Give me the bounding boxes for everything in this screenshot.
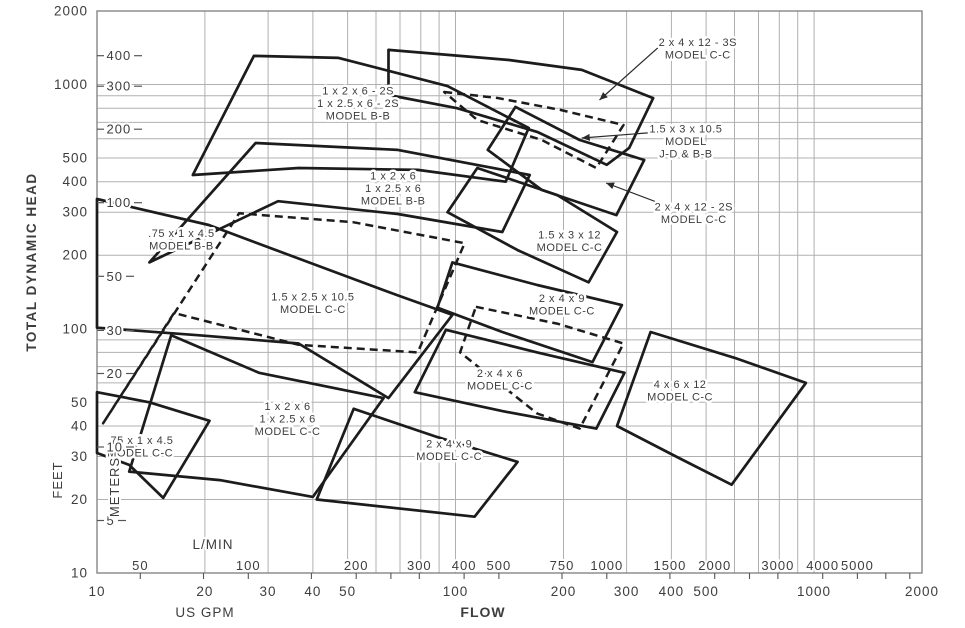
feet-tick-label: 2000: [54, 4, 88, 19]
lmin-tick-label: 400: [452, 558, 477, 573]
callout-2x4x12-2s-label: 2 x 4 x 12 - 2S: [655, 202, 733, 214]
gpm-tick-label: 400: [659, 584, 685, 599]
gpm-tick-label: 500: [693, 584, 719, 599]
envelope-15x3x12-cc: [448, 168, 618, 282]
chart-canvas: .75 x 1 x 4.5MODEL B-B.75 x 1 x 4.5MODEL…: [0, 0, 965, 628]
gpm-tick-label: 40: [304, 584, 321, 599]
gpm-axis-name: US GPM: [175, 605, 234, 620]
lmin-tick-label: 2000: [698, 558, 731, 573]
callouts: 2 x 4 x 12 - 3SMODEL C-C1.5 x 3 x 10.5MO…: [582, 37, 737, 226]
gpm-tick-label: 200: [551, 584, 577, 599]
envelope-1x2x6-2s-bb-label: 1 x 2 x 6 - 2S: [322, 86, 394, 98]
callout-15x3x105-jd-arrow: [582, 132, 660, 138]
envelope-4x6x12-cc: [617, 332, 806, 485]
meters-tick-label: 400: [107, 48, 132, 63]
envelope-1x2x6-2s-bb-label: 1 x 2.5 x 6 - 2S: [317, 98, 399, 110]
envelope-15x3x12-cc-label: 1.5 x 3 x 12: [538, 230, 601, 242]
envelope-1x2x6-cc-label: 1 x 2 x 6: [265, 401, 311, 413]
feet-tick-label: 300: [62, 205, 88, 220]
envelope-1x2x6-bb-label: MODEL B-B: [361, 196, 426, 208]
gpm-tick-label: 10: [88, 584, 105, 599]
envelope-labels: .75 x 1 x 4.5MODEL B-B.75 x 1 x 4.5MODEL…: [107, 86, 713, 463]
callout-2x4x12-3s-arrow: [600, 44, 663, 100]
envelope-2x4x9-cc-upper-label: MODEL C-C: [529, 306, 595, 318]
envelope-2x4x9-cc-upper-label: 2 x 4 x 9: [539, 293, 585, 305]
meters-tick-label: 10: [107, 439, 123, 454]
lmin-tick-label: 100: [236, 558, 261, 573]
envelope-2x4x6-cc-label: MODEL C-C: [467, 381, 533, 393]
envelope-2x4x9-cc-lower-label: MODEL C-C: [416, 451, 482, 463]
callout-15x3x105-jd-label: MODEL: [665, 136, 707, 148]
callout-2x4x12-3s-label: MODEL C-C: [665, 49, 731, 61]
feet-tick-label: 30: [71, 449, 88, 464]
envelope-1x2x6-cc: [129, 335, 383, 497]
axis-ticks: 1020304050100200300400500100020005102030…: [54, 4, 939, 600]
gpm-tick-label: 2000: [905, 584, 939, 599]
x-axis-title: FLOW: [460, 604, 505, 620]
meters-tick-label: 20: [107, 366, 123, 381]
feet-tick-label: 200: [62, 248, 88, 263]
envelope-4x6x12-cc-label: 4 x 6 x 12: [654, 379, 707, 391]
callout-15x3x105-jd-label: J-D & B-B: [659, 149, 712, 161]
envelope-2x4x6-cc-label: 2 x 4 x 6: [477, 368, 523, 380]
envelope-1x2x6-2s-bb-label: MODEL B-B: [326, 111, 391, 123]
gpm-tick-label: 30: [260, 584, 277, 599]
gpm-tick-label: 50: [339, 584, 356, 599]
gpm-tick-label: 20: [196, 584, 213, 599]
envelope-075x1x45-bb-label: MODEL B-B: [149, 240, 214, 252]
feet-tick-label: 50: [71, 395, 88, 410]
envelope-1x2x6-cc-label: 1 x 2.5 x 6: [259, 413, 315, 425]
lmin-tick-label: 1000: [590, 558, 623, 573]
envelope-075x1x45-bb-label: .75 x 1 x 4.5: [148, 228, 214, 240]
lmin-tick-label: 750: [550, 558, 575, 573]
meters-tick-label: 100: [107, 195, 132, 210]
callout-2x4x12-2s-label: MODEL C-C: [661, 214, 727, 226]
lmin-axis-name: L/MIN: [192, 537, 233, 552]
envelope-15x25x105-cc-label: MODEL C-C: [280, 304, 346, 316]
lmin-tick-label: 5000: [841, 558, 874, 573]
feet-tick-label: 1000: [54, 77, 88, 92]
gpm-tick-label: 100: [443, 584, 469, 599]
envelope-1x2x6-bb-label: 1 x 2.5 x 6: [365, 183, 421, 195]
meters-axis-name: METERS: [107, 457, 122, 517]
envelope-15x25x105-cc-label: 1.5 x 2.5 x 10.5: [271, 291, 354, 303]
gpm-tick-label: 300: [614, 584, 640, 599]
meters-tick-label: 300: [107, 79, 132, 94]
feet-axis-name: FEET: [50, 461, 65, 498]
pump-selection-chart-page: .75 x 1 x 4.5MODEL B-B.75 x 1 x 4.5MODEL…: [0, 0, 965, 628]
feet-tick-label: 500: [62, 151, 88, 166]
envelope-2x4x9-cc-lower-label: 2 x 4 x 9: [426, 438, 472, 450]
feet-tick-label: 100: [62, 321, 88, 336]
y-axis-title: TOTAL DYNAMIC HEAD: [24, 172, 39, 351]
log-grid: [97, 11, 922, 573]
feet-tick-label: 40: [71, 418, 88, 433]
feet-tick-label: 400: [62, 174, 88, 189]
envelope-1x2x6-bb-label: 1 x 2 x 6: [370, 171, 416, 183]
lmin-tick-label: 4000: [806, 558, 839, 573]
lmin-tick-label: 50: [132, 558, 148, 573]
envelope-4x6x12-cc-label: MODEL C-C: [647, 392, 713, 404]
feet-tick-label: 20: [71, 492, 88, 507]
callout-15x3x105-jd-label: 1.5 x 3 x 10.5: [649, 124, 722, 136]
envelope-15x3x12-cc-label: MODEL C-C: [537, 242, 603, 254]
feet-tick-label: 10: [71, 566, 88, 581]
lmin-tick-label: 1500: [653, 558, 686, 573]
callout-2x4x12-3s-label: 2 x 4 x 12 - 3S: [659, 37, 737, 49]
lmin-tick-label: 200: [344, 558, 369, 573]
lmin-tick-label: 3000: [761, 558, 794, 573]
lmin-tick-label: 500: [487, 558, 512, 573]
lmin-tick-label: 300: [407, 558, 432, 573]
envelope-1x2x6-cc-label: MODEL C-C: [255, 426, 321, 438]
meters-tick-label: 50: [107, 269, 123, 284]
gpm-tick-label: 1000: [797, 584, 831, 599]
meters-tick-label: 200: [107, 122, 132, 137]
pump-envelope-chart: .75 x 1 x 4.5MODEL B-B.75 x 1 x 4.5MODEL…: [0, 0, 965, 628]
meters-tick-label: 30: [107, 323, 123, 338]
